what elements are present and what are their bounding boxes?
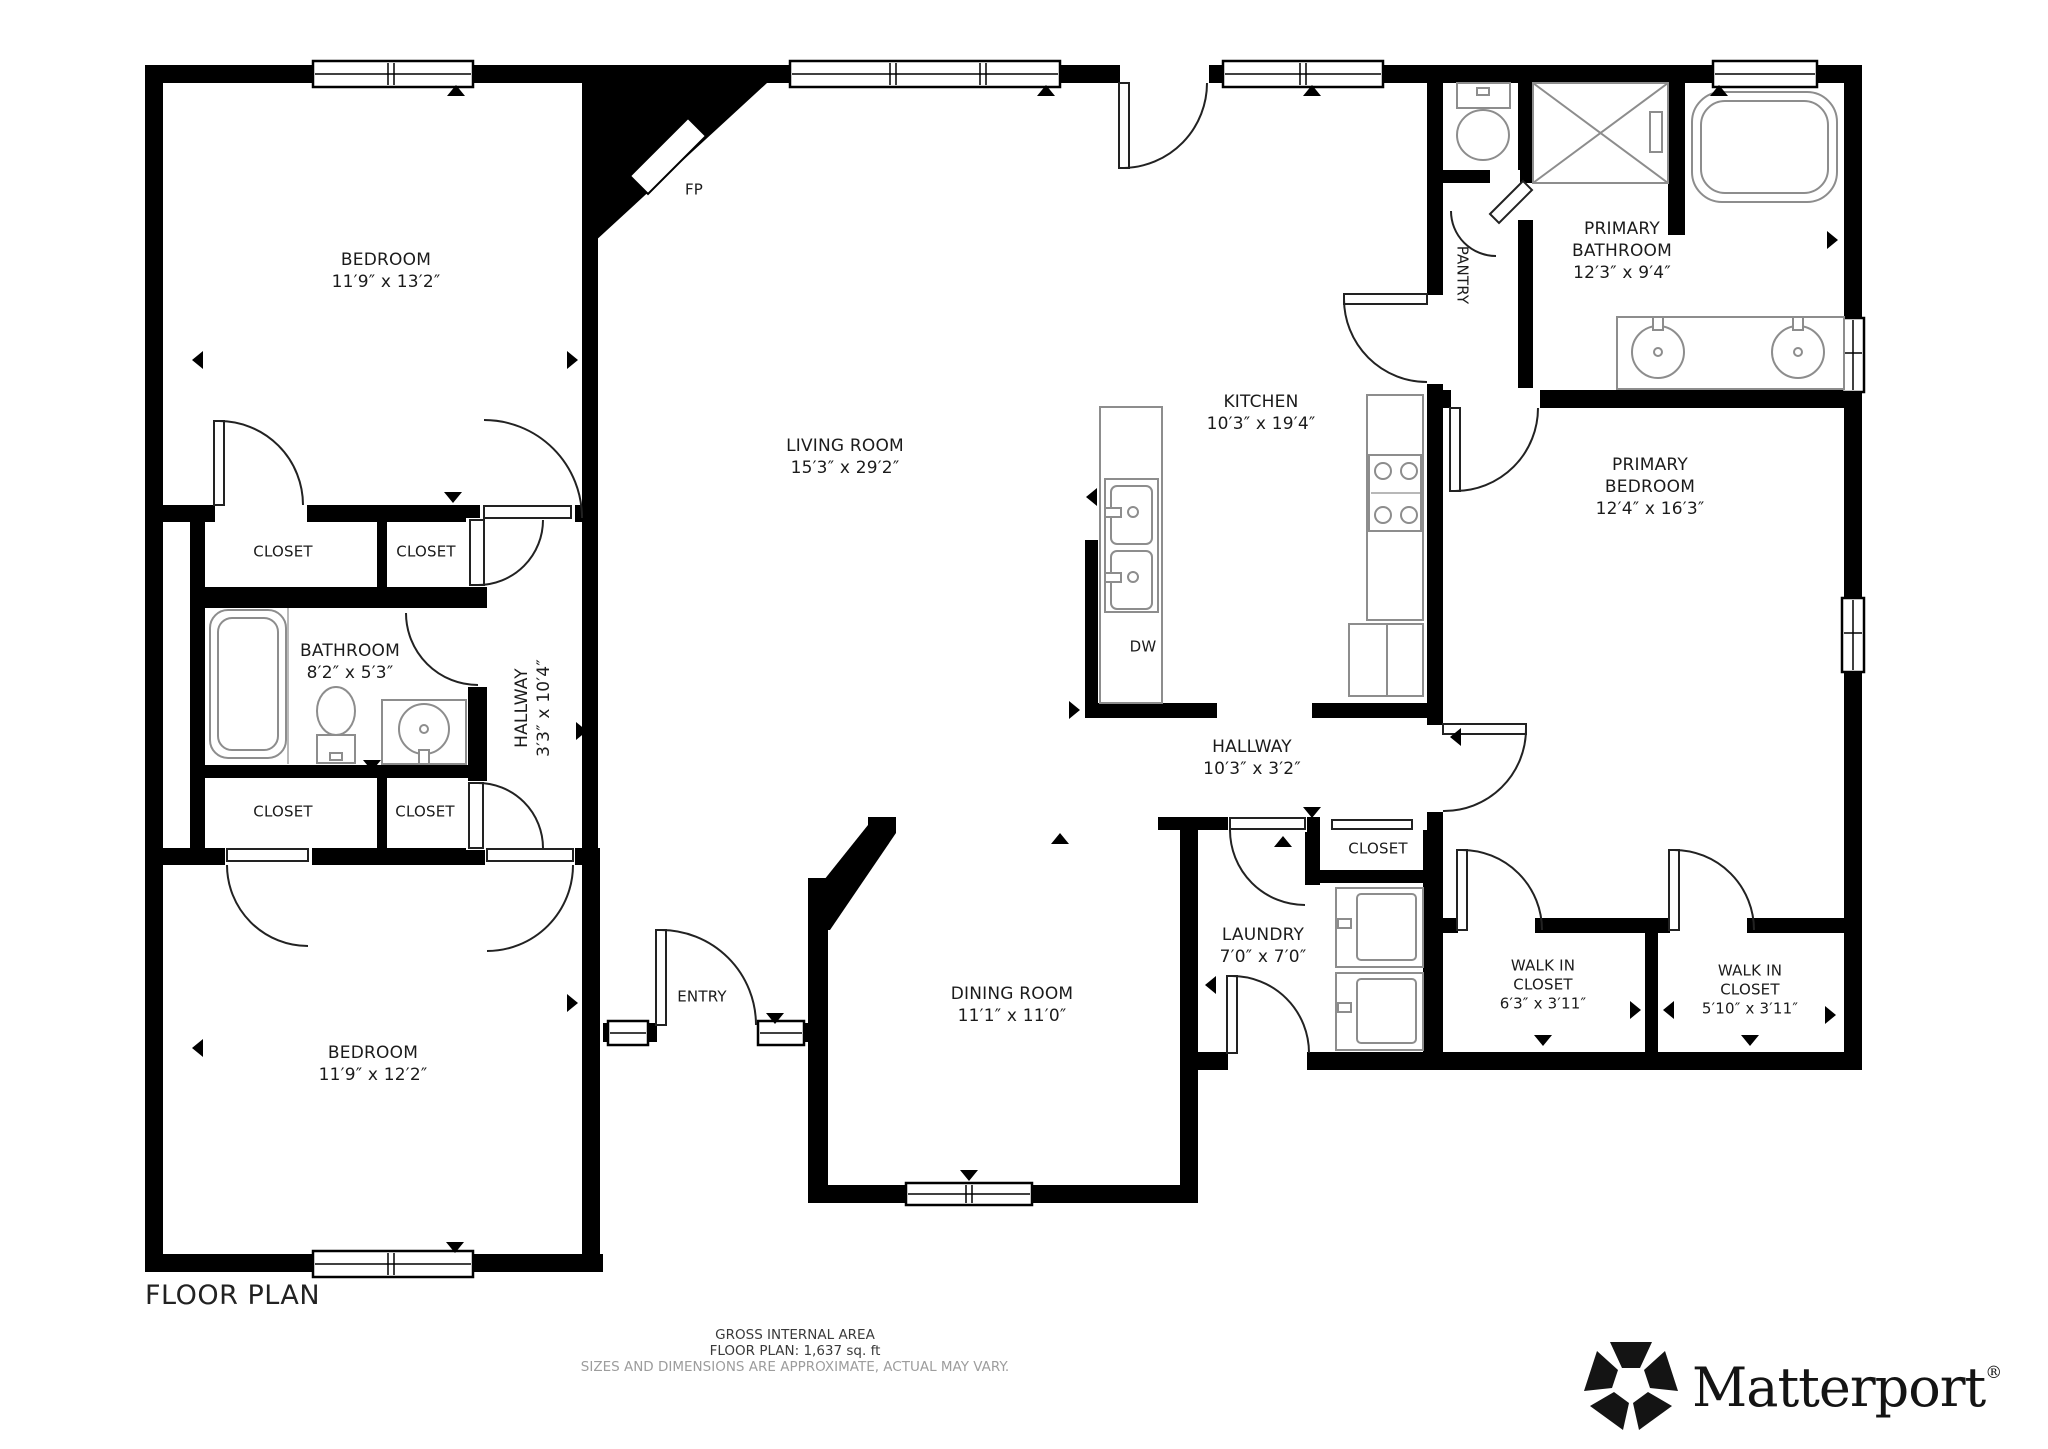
label-entry: ENTRY bbox=[677, 988, 727, 1007]
registered-mark: ® bbox=[1985, 1363, 2001, 1383]
kitchen-island-icon bbox=[1100, 407, 1162, 703]
washer-icon bbox=[1336, 888, 1423, 967]
floor-plan-drawing bbox=[0, 0, 2048, 1449]
floor-plan-page: BEDROOM 11′9″ x 13′2″LIVING ROOM 15′3″ x… bbox=[0, 0, 2048, 1449]
footer-disclaimer: SIZES AND DIMENSIONS ARE APPROXIMATE, AC… bbox=[581, 1359, 1009, 1375]
double-vanity-icon bbox=[1617, 317, 1844, 389]
label-dishwasher: DW bbox=[1130, 638, 1157, 657]
label-dining-room: DINING ROOM 11′1″ x 11′0″ bbox=[951, 983, 1074, 1027]
footer-gross-area: GROSS INTERNAL AREA bbox=[581, 1327, 1009, 1343]
door-leaf bbox=[214, 421, 224, 505]
label-primary-bathroom: PRIMARY BATHROOM 12′3″ x 9′4″ bbox=[1572, 218, 1672, 284]
window bbox=[313, 61, 473, 87]
label-closet-2: CLOSET bbox=[396, 543, 455, 562]
door-leaf bbox=[1344, 294, 1427, 304]
door-leaf bbox=[1450, 408, 1460, 491]
bathtub-icon bbox=[210, 610, 286, 758]
bathtub-icon bbox=[1692, 92, 1837, 202]
fridge-icon bbox=[1349, 624, 1423, 696]
label-closet-4: CLOSET bbox=[395, 803, 454, 822]
label-hallway-1: HALLWAY 3′3″ x 10′4″ bbox=[511, 659, 555, 757]
shower-icon bbox=[1533, 83, 1668, 183]
label-bathroom: BATHROOM 8′2″ x 5′3″ bbox=[300, 640, 400, 684]
matterport-wordmark: Matterport® bbox=[1692, 1356, 2001, 1419]
door-leaf bbox=[656, 930, 666, 1025]
label-living-room: LIVING ROOM 15′3″ x 29′2″ bbox=[786, 435, 904, 479]
label-bedroom-2: BEDROOM 11′9″ x 12′2″ bbox=[319, 1042, 428, 1086]
door-leaf bbox=[484, 506, 571, 518]
sink-icon bbox=[382, 700, 466, 764]
door-leaf bbox=[1443, 724, 1526, 734]
window bbox=[906, 1183, 1032, 1205]
sliding-door-panel bbox=[1332, 820, 1412, 829]
door-leaf bbox=[1230, 818, 1305, 829]
door-leaf bbox=[1669, 850, 1679, 930]
page-title: FLOOR PLAN bbox=[145, 1280, 320, 1311]
door-leaf bbox=[1227, 976, 1237, 1053]
label-fireplace: FP bbox=[685, 181, 703, 200]
label-kitchen: KITCHEN 10′3″ x 19′4″ bbox=[1207, 391, 1316, 435]
door-leaf bbox=[470, 520, 484, 585]
label-closet-1: CLOSET bbox=[253, 543, 312, 562]
window bbox=[758, 1021, 804, 1045]
footer-note: GROSS INTERNAL AREA FLOOR PLAN: 1,637 sq… bbox=[581, 1327, 1009, 1375]
door-leaf-diagonal bbox=[1490, 181, 1532, 223]
label-closet-3: CLOSET bbox=[253, 803, 312, 822]
label-laundry: LAUNDRY 7′0″ x 7′0″ bbox=[1220, 924, 1307, 968]
window bbox=[1842, 318, 1864, 392]
stove-icon bbox=[1367, 395, 1423, 620]
door-leaf bbox=[1119, 83, 1129, 168]
door-leaf bbox=[1457, 850, 1467, 930]
window bbox=[1713, 61, 1817, 87]
door-leaf bbox=[227, 849, 308, 861]
matterport-logo-icon bbox=[1584, 1342, 1678, 1430]
footer-floor-area: FLOOR PLAN: 1,637 sq. ft bbox=[581, 1343, 1009, 1359]
door-leaf bbox=[487, 849, 573, 861]
label-hallway-2: HALLWAY 10′3″ x 3′2″ bbox=[1203, 736, 1301, 780]
label-bedroom-1: BEDROOM 11′9″ x 13′2″ bbox=[332, 249, 441, 293]
door-leaf bbox=[469, 783, 483, 848]
door-openings bbox=[215, 63, 1747, 1072]
window bbox=[790, 61, 1060, 87]
window bbox=[1223, 61, 1383, 87]
toilet-icon bbox=[1457, 83, 1510, 160]
window bbox=[313, 1251, 473, 1277]
window bbox=[608, 1021, 648, 1045]
label-primary-bedroom: PRIMARY BEDROOM 12′4″ x 16′3″ bbox=[1596, 454, 1705, 520]
label-walk-in-closet-1: WALK IN CLOSET 6′3″ x 3′11″ bbox=[1500, 957, 1587, 1014]
dryer-icon bbox=[1336, 973, 1423, 1050]
label-walk-in-closet-2: WALK IN CLOSET 5′10″ x 3′11″ bbox=[1702, 962, 1798, 1019]
toilet-icon bbox=[317, 687, 355, 763]
label-closet-5: CLOSET bbox=[1348, 840, 1407, 859]
label-pantry: PANTRY bbox=[1453, 246, 1472, 305]
window bbox=[1842, 598, 1864, 672]
